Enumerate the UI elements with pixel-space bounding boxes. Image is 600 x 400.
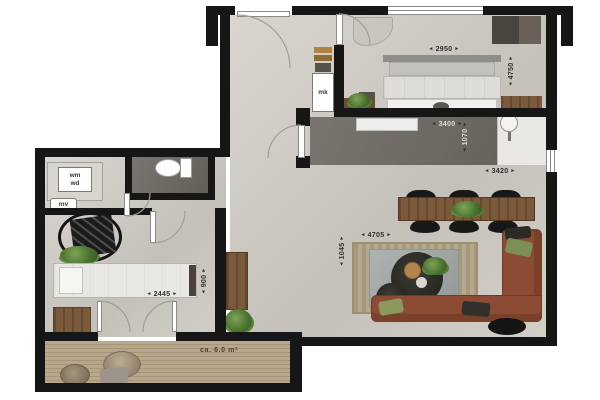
bedroom2-plant xyxy=(60,246,98,264)
bed-duvet xyxy=(383,76,501,99)
dim-bed-length: 2445 xyxy=(132,289,192,299)
toilet-bowl xyxy=(155,159,181,177)
meter-cupboard-label: mk xyxy=(318,89,327,96)
wall xyxy=(546,172,557,346)
balcony-area-label: ca. 6.0 m² xyxy=(183,347,255,354)
wall xyxy=(334,108,557,117)
dim-living-width: 4705 xyxy=(346,230,406,240)
wall xyxy=(215,208,226,337)
hall-plant xyxy=(348,93,370,108)
bedroom1-door xyxy=(336,14,343,45)
washer-label: wm xyxy=(70,172,81,179)
wall xyxy=(35,383,300,392)
wall xyxy=(483,6,573,15)
wall xyxy=(206,6,218,46)
kitchen-counter xyxy=(356,118,418,131)
dining-window xyxy=(546,150,557,172)
wall xyxy=(176,332,302,341)
living-plant xyxy=(225,309,252,333)
floor-plan: mk wm wd mv ca. 6.0 m² xyxy=(0,0,600,400)
floor-lamp xyxy=(488,318,526,335)
washer-dryer-box: wm wd xyxy=(58,167,92,192)
shoe-rack xyxy=(313,46,334,73)
wall xyxy=(35,148,230,157)
meter-cupboard: mk xyxy=(312,73,334,112)
dim-master-bedroom-width: 2950 xyxy=(414,44,474,54)
dining-chair xyxy=(449,220,479,233)
dim-living-depth: 1045 xyxy=(337,231,347,271)
bedroom2-door xyxy=(150,211,156,243)
tray-white xyxy=(416,277,427,288)
shoe-rack-basket xyxy=(315,63,331,72)
dim-kitchen-depth: 1070 xyxy=(460,117,470,157)
console-desk xyxy=(226,252,248,310)
toilet-tank xyxy=(180,158,192,178)
dim-bed-width: 900 xyxy=(199,261,209,301)
sofa-pillow-dark xyxy=(461,301,490,317)
bedroom-window xyxy=(388,6,483,15)
double-bed xyxy=(383,55,501,113)
shoe-rack-shelf xyxy=(314,47,332,53)
balcony-door-right xyxy=(172,301,177,332)
dining-chair xyxy=(410,220,440,233)
wall xyxy=(43,208,152,215)
wall xyxy=(300,337,557,346)
balcony-door-left xyxy=(97,301,102,332)
dining-table-plant xyxy=(452,201,482,217)
wall xyxy=(296,108,310,126)
bed-pillow xyxy=(59,267,83,294)
wardrobe xyxy=(492,16,541,44)
wall xyxy=(334,45,344,117)
dim-dining-width: 3420 xyxy=(470,166,530,176)
wall xyxy=(43,332,98,341)
dryer-label: wd xyxy=(70,180,79,187)
bed-pillows xyxy=(389,62,495,76)
dim-master-bedroom-depth: 4750 xyxy=(506,51,516,91)
bathroom-door xyxy=(124,193,130,216)
coffee-table-plant xyxy=(423,257,447,275)
front-door xyxy=(237,11,290,17)
hall-door xyxy=(298,125,305,158)
bistro-table-leg xyxy=(508,132,511,141)
wall xyxy=(35,148,45,392)
shoe-rack-shelf xyxy=(314,55,332,61)
bed-headboard xyxy=(383,55,501,62)
wall xyxy=(290,341,302,392)
wall xyxy=(132,193,215,200)
wall xyxy=(561,6,573,46)
wall xyxy=(546,6,557,150)
wall xyxy=(220,6,230,156)
